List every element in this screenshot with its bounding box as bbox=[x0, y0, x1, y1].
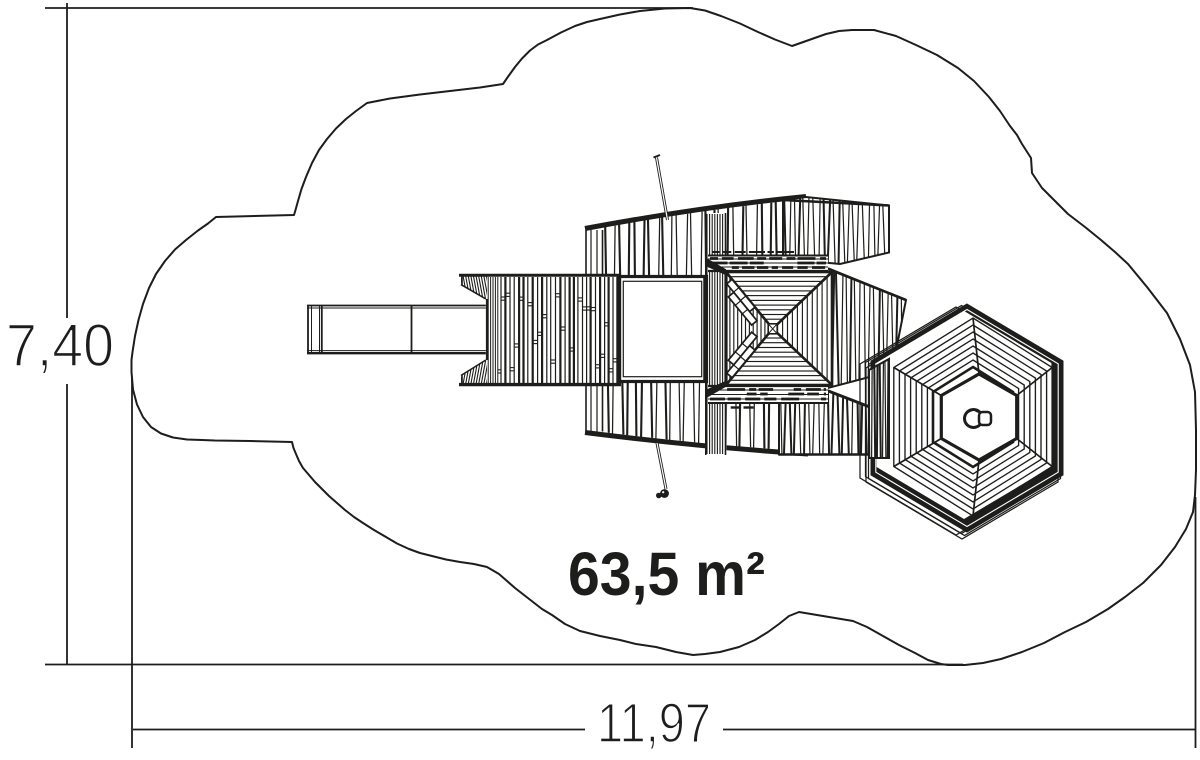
svg-text:11,97: 11,97 bbox=[597, 691, 711, 754]
svg-text:7,40: 7,40 bbox=[6, 312, 114, 379]
svg-text:63,5 m²: 63,5 m² bbox=[568, 540, 765, 608]
